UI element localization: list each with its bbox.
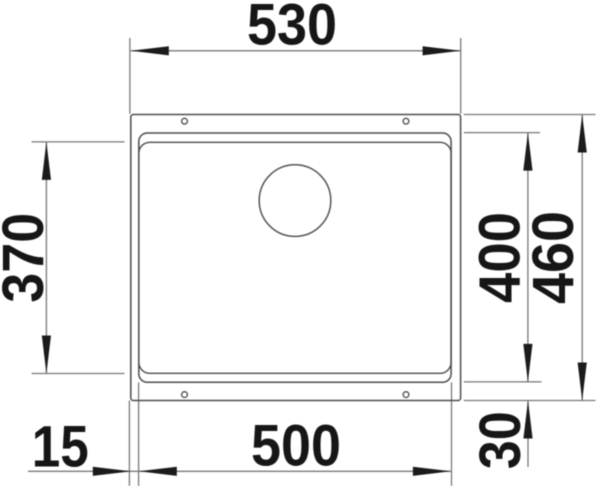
svg-text:370: 370 xyxy=(0,213,56,303)
svg-text:15: 15 xyxy=(32,415,89,480)
svg-text:30: 30 xyxy=(468,411,533,469)
svg-text:530: 530 xyxy=(247,0,337,58)
svg-text:460: 460 xyxy=(521,211,586,304)
svg-text:500: 500 xyxy=(251,414,341,479)
